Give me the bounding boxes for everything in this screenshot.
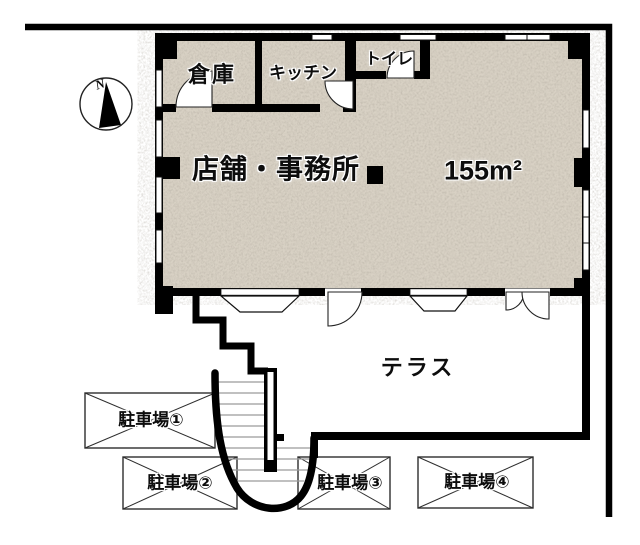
window-bay-2 — [410, 296, 467, 311]
parking-label-1: 駐車場① — [118, 412, 183, 429]
window-top-2 — [400, 35, 436, 41]
pillar-center — [367, 166, 383, 184]
parking-label-4: 駐車場④ — [444, 474, 509, 491]
window-bay-1 — [221, 296, 299, 312]
door-arc-terrace — [328, 292, 362, 326]
parking-label-3: 駐車場③ — [317, 475, 382, 492]
room-label-kitchen: キッチン — [269, 65, 337, 82]
room-label-toilet: トイレ — [365, 52, 413, 68]
room-label-storage: 倉庫 — [188, 64, 236, 86]
window-left-1 — [156, 70, 162, 107]
area-label: 155m² — [444, 158, 522, 185]
window-left-4 — [156, 230, 162, 263]
pillar-right — [574, 158, 590, 187]
door-arc-double-left — [506, 292, 524, 310]
window-right-2 — [583, 190, 589, 270]
window-left-3 — [156, 177, 162, 213]
window-bay-2-gap — [410, 289, 467, 295]
pillar-left — [163, 157, 180, 179]
window-left-2 — [156, 120, 162, 157]
window-right-1 — [583, 110, 589, 148]
parking-label-2: 駐車場② — [147, 475, 212, 492]
door-arc-double-right — [522, 292, 549, 319]
window-bay-1-gap — [221, 289, 299, 295]
room-label-main: 店舗・事務所 — [192, 157, 360, 184]
room-label-terrace: テラス — [381, 357, 456, 379]
floor-plan: N 倉庫 キッチン トイレ 店舗・事務所 155m² テラス 駐車場① 駐車場②… — [0, 0, 640, 545]
window-top-1 — [312, 35, 332, 41]
compass-icon — [80, 78, 132, 130]
